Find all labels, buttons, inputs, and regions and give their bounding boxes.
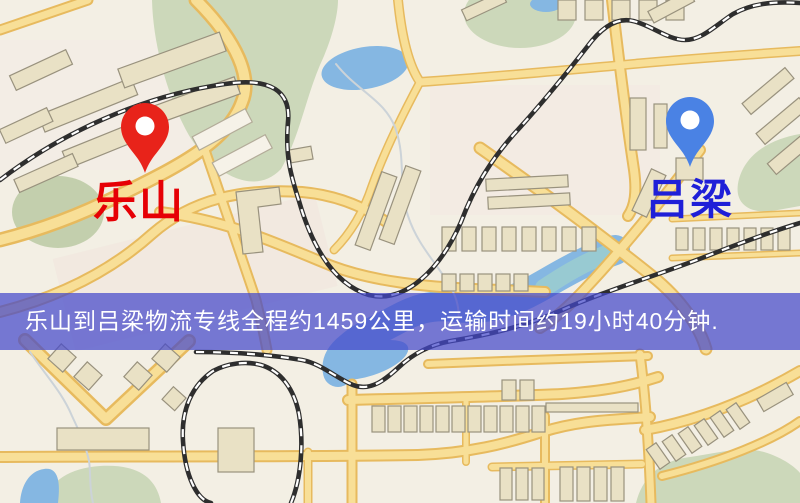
destination-pin-hole (681, 111, 700, 130)
route-info-banner: 乐山到吕梁物流专线全程约1459公里，运输时间约19小时40分钟. (0, 293, 800, 350)
origin-pin-label: 乐山 (93, 178, 185, 227)
pins-overlay: 乐山 吕梁 (0, 0, 800, 503)
destination-pin-label: 吕梁 (646, 176, 734, 223)
origin-pin-hole (136, 117, 155, 136)
destination-pin[interactable] (666, 97, 714, 167)
map-screenshot: 乐山 吕梁 乐山到吕梁物流专线全程约1459公里，运输时间约19小时40分钟. (0, 0, 800, 503)
origin-pin[interactable] (121, 103, 169, 173)
route-info-text: 乐山到吕梁物流专线全程约1459公里，运输时间约19小时40分钟. (25, 308, 719, 334)
destination-pin-marker-icon (666, 97, 714, 167)
origin-pin-marker-icon (121, 103, 169, 173)
